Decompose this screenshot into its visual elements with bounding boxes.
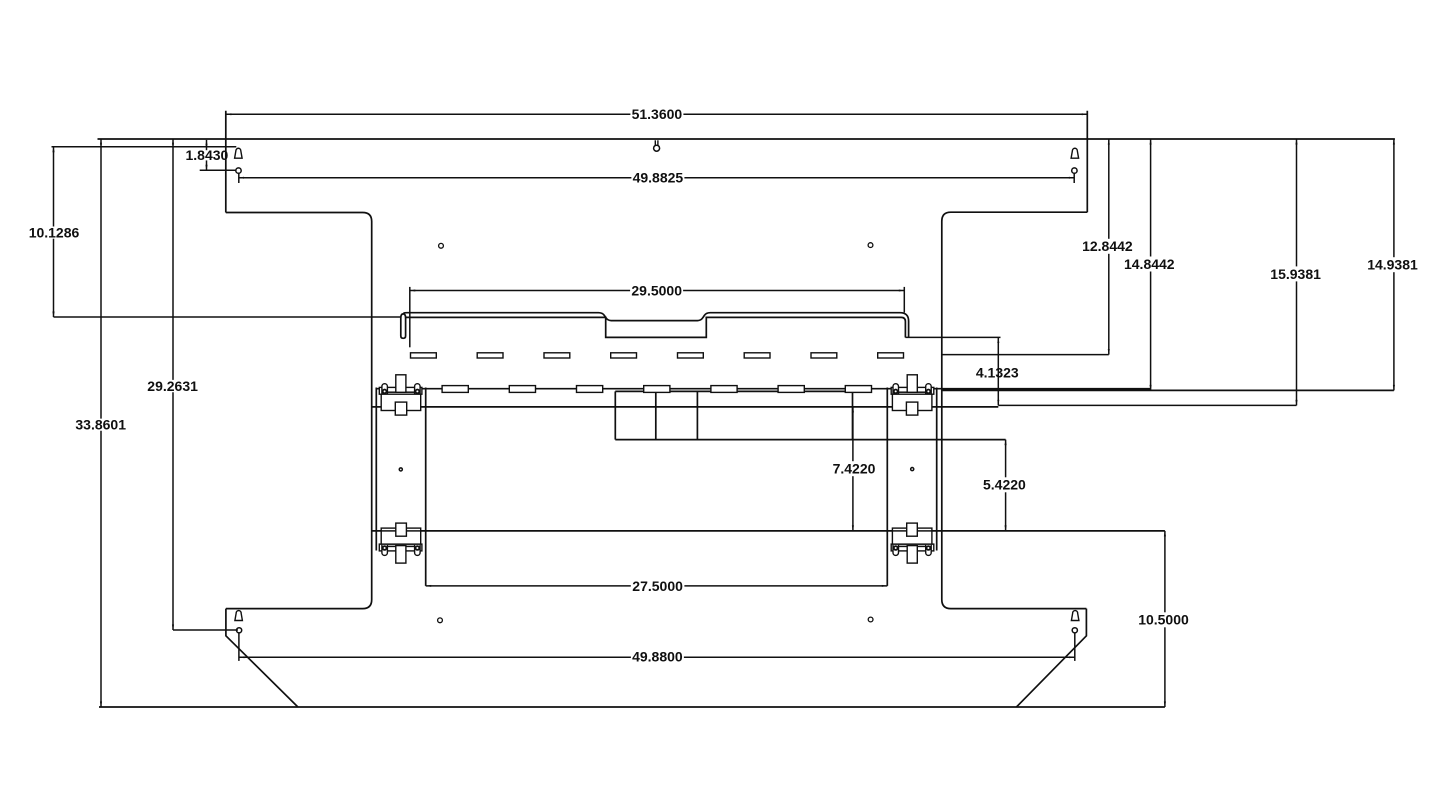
svg-text:10.1286: 10.1286	[29, 224, 80, 240]
svg-text:33.8601: 33.8601	[75, 417, 126, 433]
svg-text:27.5000: 27.5000	[632, 578, 683, 594]
svg-text:14.9381: 14.9381	[1367, 257, 1418, 273]
svg-text:14.8442: 14.8442	[1124, 256, 1175, 272]
svg-text:49.8800: 49.8800	[632, 648, 683, 664]
svg-text:49.8825: 49.8825	[633, 170, 684, 186]
svg-text:7.4220: 7.4220	[833, 461, 876, 477]
svg-text:12.8442: 12.8442	[1082, 238, 1133, 254]
svg-text:1.8430: 1.8430	[185, 147, 228, 163]
svg-text:5.4220: 5.4220	[983, 477, 1026, 493]
svg-text:29.2631: 29.2631	[147, 378, 198, 394]
svg-text:10.5000: 10.5000	[1138, 612, 1189, 628]
svg-text:4.1323: 4.1323	[976, 365, 1019, 381]
svg-text:51.3600: 51.3600	[632, 106, 683, 122]
svg-text:15.9381: 15.9381	[1270, 266, 1321, 282]
svg-text:29.5000: 29.5000	[631, 282, 682, 298]
